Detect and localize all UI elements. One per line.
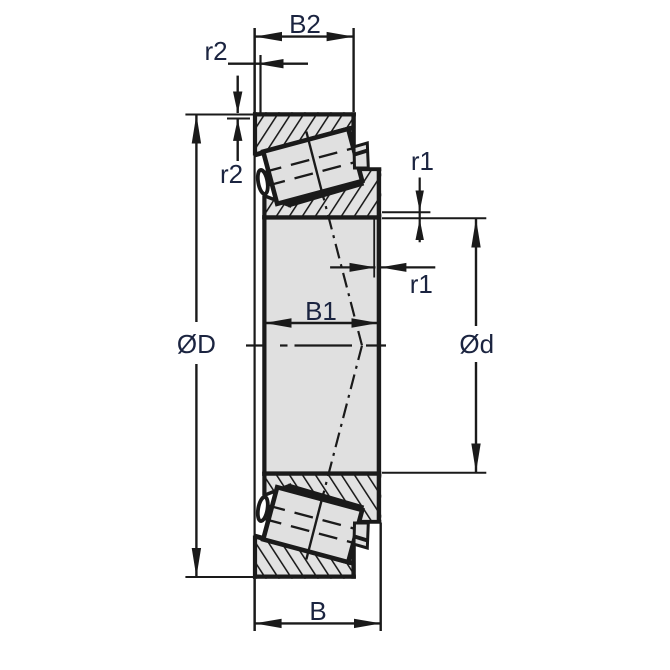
svg-text:r1: r1 xyxy=(410,269,433,299)
svg-text:r1: r1 xyxy=(411,146,434,176)
svg-text:r2: r2 xyxy=(220,159,243,189)
svg-text:B2: B2 xyxy=(289,9,321,39)
svg-text:B: B xyxy=(309,596,326,626)
svg-text:r2: r2 xyxy=(204,36,227,66)
svg-text:B1: B1 xyxy=(305,296,337,326)
svg-text:ØD: ØD xyxy=(177,329,216,359)
svg-text:Ød: Ød xyxy=(459,329,494,359)
